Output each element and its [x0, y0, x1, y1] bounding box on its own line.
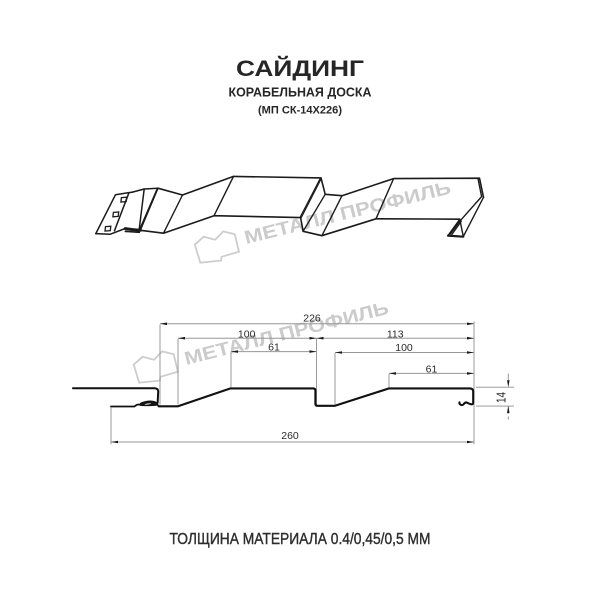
svg-text:САЙДИНГ: САЙДИНГ — [236, 56, 364, 81]
svg-text:(МП СК-14Х226): (МП СК-14Х226) — [258, 104, 342, 116]
svg-text:113: 113 — [387, 329, 404, 341]
svg-text:260: 260 — [281, 430, 299, 442]
svg-text:100: 100 — [395, 342, 413, 354]
svg-text:61: 61 — [268, 341, 280, 353]
svg-text:61: 61 — [426, 364, 438, 376]
svg-text:ТОЛЩИНА МАТЕРИАЛА 0.4/0,45/0,5: ТОЛЩИНА МАТЕРИАЛА 0.4/0,45/0,5 ММ — [170, 531, 431, 548]
svg-text:226: 226 — [303, 313, 321, 325]
svg-text:100: 100 — [238, 328, 256, 340]
svg-text:КОРАБЕЛЬНАЯ ДОСКА: КОРАБЕЛЬНАЯ ДОСКА — [229, 85, 372, 99]
